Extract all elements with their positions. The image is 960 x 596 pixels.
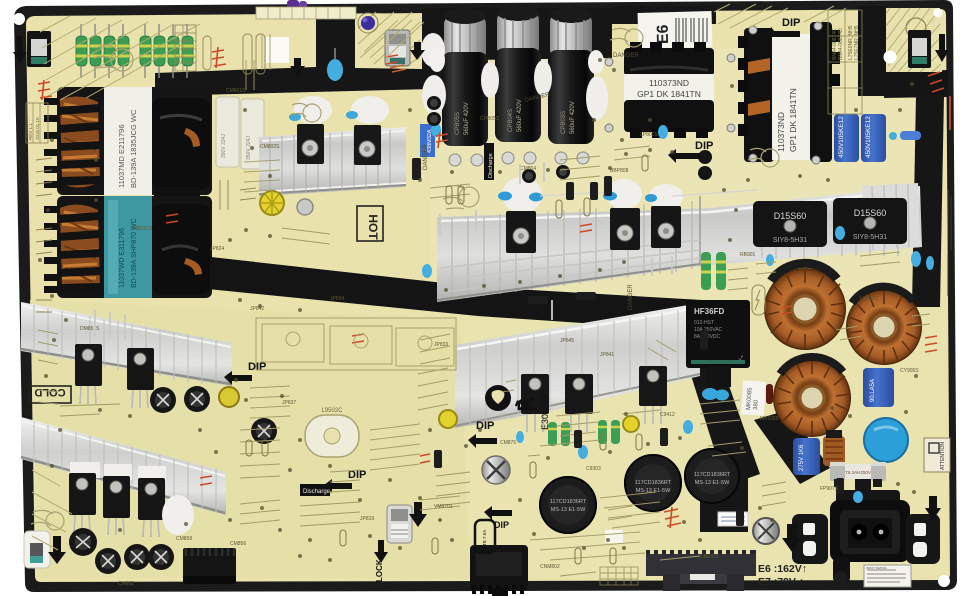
svg-text:VM9701: VM9701	[434, 504, 453, 510]
svg-text:CM801S: CM801S	[226, 88, 246, 94]
svg-text:380: 380	[753, 399, 760, 410]
svg-text:90.LA5A: 90.LA5A	[870, 379, 876, 402]
svg-text:450V105KE12: 450V105KE12	[838, 116, 845, 158]
svg-text:Discharge: Discharge	[488, 153, 494, 178]
svg-text:JP845: JP845	[560, 338, 574, 344]
svg-text:E6: E6	[655, 24, 672, 44]
svg-text:Discharge: Discharge	[303, 489, 331, 495]
svg-text:C9303: C9303	[586, 466, 601, 472]
svg-text:JP824: JP824	[210, 246, 224, 252]
svg-text:LX903S: LX903S	[860, 296, 878, 302]
svg-text:JP833: JP833	[434, 342, 448, 348]
svg-text:117CD1836RT: 117CD1836RT	[635, 480, 672, 486]
svg-text:C9412: C9412	[660, 412, 675, 418]
svg-text:INPUT RATING: INPUT RATING	[866, 566, 888, 570]
svg-text:COLD: COLD	[34, 386, 65, 398]
svg-text:CM858: CM858	[176, 536, 192, 542]
svg-text:11037MD E211796: 11037MD E211796	[117, 124, 126, 188]
svg-text:CM804: CM804	[520, 166, 536, 172]
svg-text:DANGER: DANGER	[613, 53, 639, 59]
svg-text:11037WD E311796: 11037WD E311796	[119, 228, 126, 288]
svg-text:10A 250VAC: 10A 250VAC	[694, 327, 723, 333]
svg-text:DIP: DIP	[782, 17, 800, 29]
svg-text:450V105KE12: 450V105KE12	[865, 116, 872, 158]
svg-text:275V 1K6: 275V 1K6	[799, 444, 805, 471]
svg-text:BD-139A 1835JCG WC: BD-139A 1835JCG WC	[129, 109, 138, 188]
svg-text:CM852: CM852	[118, 581, 134, 587]
svg-text:CM875: CM875	[500, 440, 516, 446]
svg-text:CPB05S: CPB05S	[480, 116, 500, 122]
svg-text:CPB04S: CPB04S	[508, 109, 514, 132]
svg-text:JP819: JP819	[360, 516, 374, 522]
svg-text:JP837: JP837	[282, 400, 296, 406]
svg-text:LOCK: LOCK	[375, 559, 384, 582]
svg-text:CY905S: CY905S	[900, 368, 919, 374]
svg-text:REV 1.1: REV 1.1	[28, 123, 33, 140]
svg-text:℟: ℟	[514, 396, 539, 412]
svg-text:012-HST: 012-HST	[694, 320, 714, 326]
svg-text:CNE801: CNE801	[700, 554, 719, 560]
svg-text:CM856: CM856	[230, 541, 246, 547]
svg-text:GP1 DK 1841TN: GP1 DK 1841TN	[788, 88, 798, 152]
svg-text:2018.01.10: 2018.01.10	[35, 117, 40, 140]
svg-text:JP842: JP842	[250, 306, 264, 312]
svg-text:110373ND: 110373ND	[776, 112, 786, 152]
svg-text:E7 :79V ↑: E7 :79V ↑	[758, 576, 804, 588]
svg-text:DIP: DIP	[248, 361, 266, 373]
svg-text:117CD1836RT: 117CD1836RT	[550, 499, 587, 505]
svg-text:MS-13 E1-5W: MS-13 E1-5W	[551, 507, 586, 513]
svg-text:E301536: E301536	[540, 394, 550, 430]
svg-text:E6 :162V↑: E6 :162V↑	[758, 563, 807, 575]
svg-text:HF36FD: HF36FD	[694, 307, 724, 316]
svg-text:DIP: DIP	[695, 140, 713, 152]
svg-text:DANGER: DANGER	[628, 284, 634, 310]
svg-text:CM802S: CM802S	[260, 144, 280, 150]
svg-text:GP1 DK 1841TN: GP1 DK 1841TN	[637, 89, 701, 99]
svg-text:RB901: RB901	[740, 252, 756, 258]
svg-text:MS-13 E1-5W: MS-13 E1-5W	[636, 488, 671, 494]
svg-text:TM801CS: TM801CS	[130, 226, 153, 232]
svg-text:T6.3AH250V: T6.3AH250V	[845, 470, 871, 475]
svg-text:350V 224J: 350V 224J	[221, 134, 227, 158]
svg-text:DM851S: DM851S	[80, 326, 100, 332]
svg-text:BN44-00874D: BN44-00874D	[838, 28, 844, 60]
svg-text:ATTENTION: ATTENTION	[940, 442, 946, 470]
svg-text:L75E7NR_NH5: L75E7NR_NH5	[854, 25, 860, 60]
svg-text:560uF 420V: 560uF 420V	[517, 99, 523, 132]
svg-text:CPB05S: CPB05S	[455, 112, 461, 135]
svg-text:560uF 420V: 560uF 420V	[570, 101, 576, 134]
svg-text:CPB03S: CPB03S	[561, 111, 567, 134]
svg-text:DANGER: DANGER	[423, 144, 429, 170]
svg-text:DIP: DIP	[494, 520, 509, 530]
svg-text:MK0085: MK0085	[760, 416, 779, 422]
svg-text:SIY8-5H31: SIY8-5H31	[853, 234, 887, 241]
svg-text:BBP808: BBP808	[610, 168, 629, 174]
svg-text:110373ND: 110373ND	[649, 78, 689, 88]
svg-text:L9502C: L9502C	[321, 408, 343, 414]
svg-text:117CD1836RT: 117CD1836RT	[694, 472, 731, 478]
svg-text:FP907S: FP907S	[820, 486, 839, 492]
svg-text:JP834: JP834	[330, 296, 344, 302]
svg-text:CNM802: CNM802	[540, 564, 560, 570]
svg-text:SIY8-5H31: SIY8-5H31	[773, 237, 807, 244]
svg-text:JP841: JP841	[600, 352, 614, 358]
svg-text:MS-13 E1-5W: MS-13 E1-5W	[695, 480, 730, 486]
svg-text:560uF 420V: 560uF 420V	[464, 102, 470, 135]
svg-text:LP801S: LP801S	[640, 132, 658, 138]
svg-text:STB 7.5A: STB 7.5A	[482, 530, 487, 549]
svg-text:HOT: HOT	[366, 214, 380, 240]
